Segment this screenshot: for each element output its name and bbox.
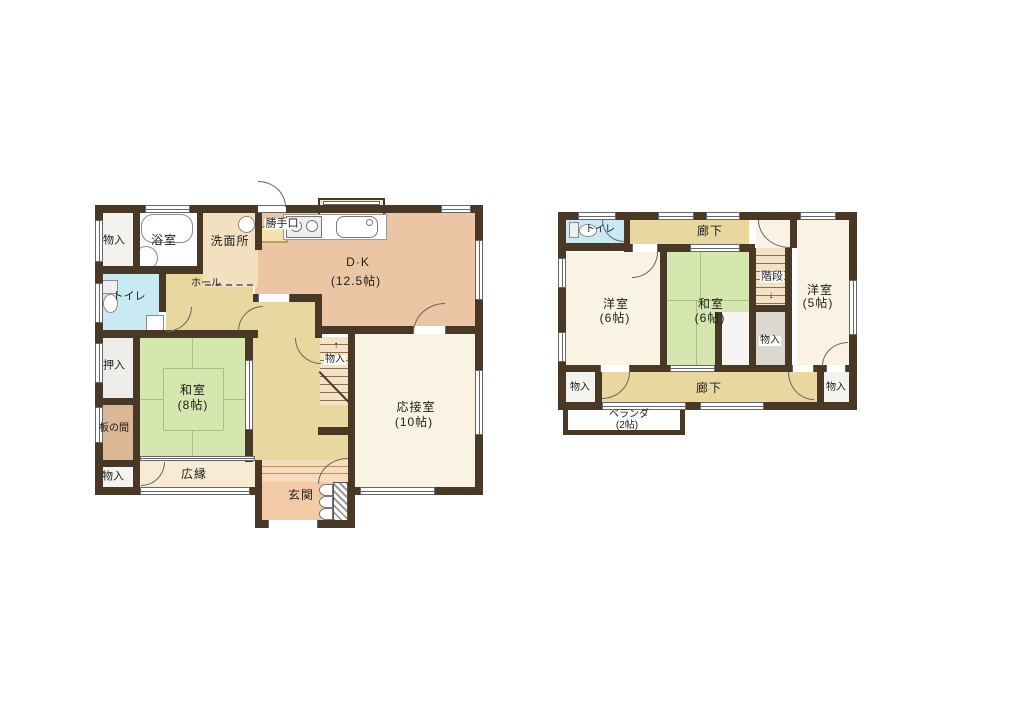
window: [360, 487, 435, 495]
wall: [660, 244, 667, 368]
wall: [95, 266, 203, 274]
door-opening: [600, 365, 630, 372]
label-toilet-1f: トイレ: [113, 292, 146, 303]
room-closet-white-2f: [722, 312, 749, 365]
shoe-cabinet-icon: [319, 508, 333, 520]
stairs-up-arrow: ↑: [334, 341, 339, 351]
label-storage-stairs: 物入: [324, 355, 346, 365]
label-storage-bl-2f: 物入: [570, 383, 590, 393]
wall: [749, 312, 756, 372]
wall: [624, 212, 630, 243]
label-storage-br-2f: 物入: [826, 383, 846, 393]
window: [706, 212, 740, 220]
tatami-line: [163, 368, 223, 369]
tatami-line: [696, 300, 697, 365]
wall: [790, 212, 797, 248]
wall: [558, 212, 566, 410]
window: [578, 212, 616, 220]
room-corridor-top: [630, 220, 749, 245]
wall: [595, 372, 602, 402]
wall: [95, 460, 140, 467]
label-genkan: 玄関: [288, 489, 314, 501]
label-corridor-bottom: 廊下: [696, 382, 722, 394]
label-west6-size: (6帖): [600, 312, 631, 324]
door-opening: [792, 365, 814, 372]
tatami-line: [223, 399, 245, 400]
faucet-icon: [366, 219, 373, 226]
label-veranda-size: (2帖): [616, 421, 638, 431]
label-itanoma: 板の間: [99, 424, 129, 434]
window: [140, 487, 250, 495]
wall: [133, 213, 140, 266]
wall: [566, 243, 630, 251]
label-stairs-2f: 階段: [760, 272, 784, 283]
room-hall-center: [253, 302, 322, 462]
shoe-cabinet-icon: [319, 496, 333, 508]
wall: [315, 326, 483, 334]
wall: [318, 427, 352, 435]
hiroen-slider: [140, 456, 255, 461]
tatami-line: [140, 399, 163, 400]
window: [558, 332, 566, 362]
label-dk: D·K: [346, 256, 370, 268]
label-dk-size: (12.5帖): [331, 275, 381, 287]
label-oshiire: 押入: [103, 361, 125, 372]
window: [658, 212, 694, 220]
wall: [159, 274, 166, 312]
label-west5: 洋室: [807, 284, 833, 296]
slider-opening: [245, 360, 253, 430]
door-arc-backdoor: [258, 181, 286, 207]
label-veranda: ベランダ: [609, 410, 649, 420]
label-washitsu: 和室: [180, 384, 206, 396]
wall: [133, 330, 258, 338]
label-toilet-2f: トイレ: [585, 225, 615, 235]
wall: [680, 410, 685, 435]
label-storage-bl: 物入: [102, 472, 124, 483]
slider-opening: [670, 365, 715, 372]
slider-opening: [258, 294, 290, 302]
label-backdoor: 勝手口: [265, 219, 300, 230]
label-hiroen: 広縁: [181, 468, 207, 480]
label-washroom: 洗面所: [210, 235, 249, 247]
tatami-line: [192, 338, 193, 368]
porch-step-hatch: [333, 482, 348, 522]
wall: [95, 398, 140, 405]
window: [558, 258, 566, 288]
stove-burner-icon: [306, 220, 318, 232]
label-west6: 洋室: [603, 298, 629, 310]
window: [475, 370, 483, 435]
label-storage-mid-2f: 物入: [759, 336, 781, 346]
wall: [749, 248, 756, 310]
tatami-line: [192, 430, 193, 458]
label-jp6-size: (6帖): [695, 312, 726, 324]
label-washitsu-size: (8帖): [178, 399, 209, 411]
label-west5-size: (5帖): [803, 297, 834, 309]
tatami-line: [163, 368, 164, 430]
stairs-down-arrow: ↓: [769, 291, 774, 301]
washbasin-icon: [238, 216, 255, 233]
floor-plan-canvas: 物入 浴室 洗面所 勝手口 D·K (12.5帖) ホール トイレ 押入 和室 …: [0, 0, 1024, 723]
window: [475, 240, 483, 300]
wall: [817, 372, 824, 402]
window: [95, 283, 103, 323]
door-opening: [632, 244, 658, 252]
label-reception: 応接室: [396, 401, 435, 413]
entry-door-opening: [268, 520, 318, 528]
window: [441, 205, 471, 213]
window: [95, 343, 103, 383]
wall: [749, 305, 792, 312]
label-jp6: 和室: [698, 298, 724, 310]
window: [800, 212, 836, 220]
label-hall: ホール: [191, 279, 221, 289]
wall: [255, 213, 262, 250]
window: [95, 220, 103, 262]
toilet-tank-icon: [569, 222, 579, 238]
wall: [197, 213, 203, 266]
tatami-line: [163, 430, 223, 431]
window: [849, 280, 857, 335]
label-corridor-top: 廊下: [697, 225, 723, 237]
window: [700, 402, 764, 410]
label-reception-size: (10帖): [395, 416, 433, 428]
slider-opening: [690, 244, 740, 252]
shoe-cabinet-icon: [319, 484, 333, 496]
wall: [255, 460, 262, 528]
tatami-line: [700, 252, 701, 300]
window: [145, 205, 190, 213]
door-opening: [826, 365, 846, 372]
label-bath: 浴室: [151, 234, 177, 246]
label-storage-tl: 物入: [103, 236, 125, 247]
